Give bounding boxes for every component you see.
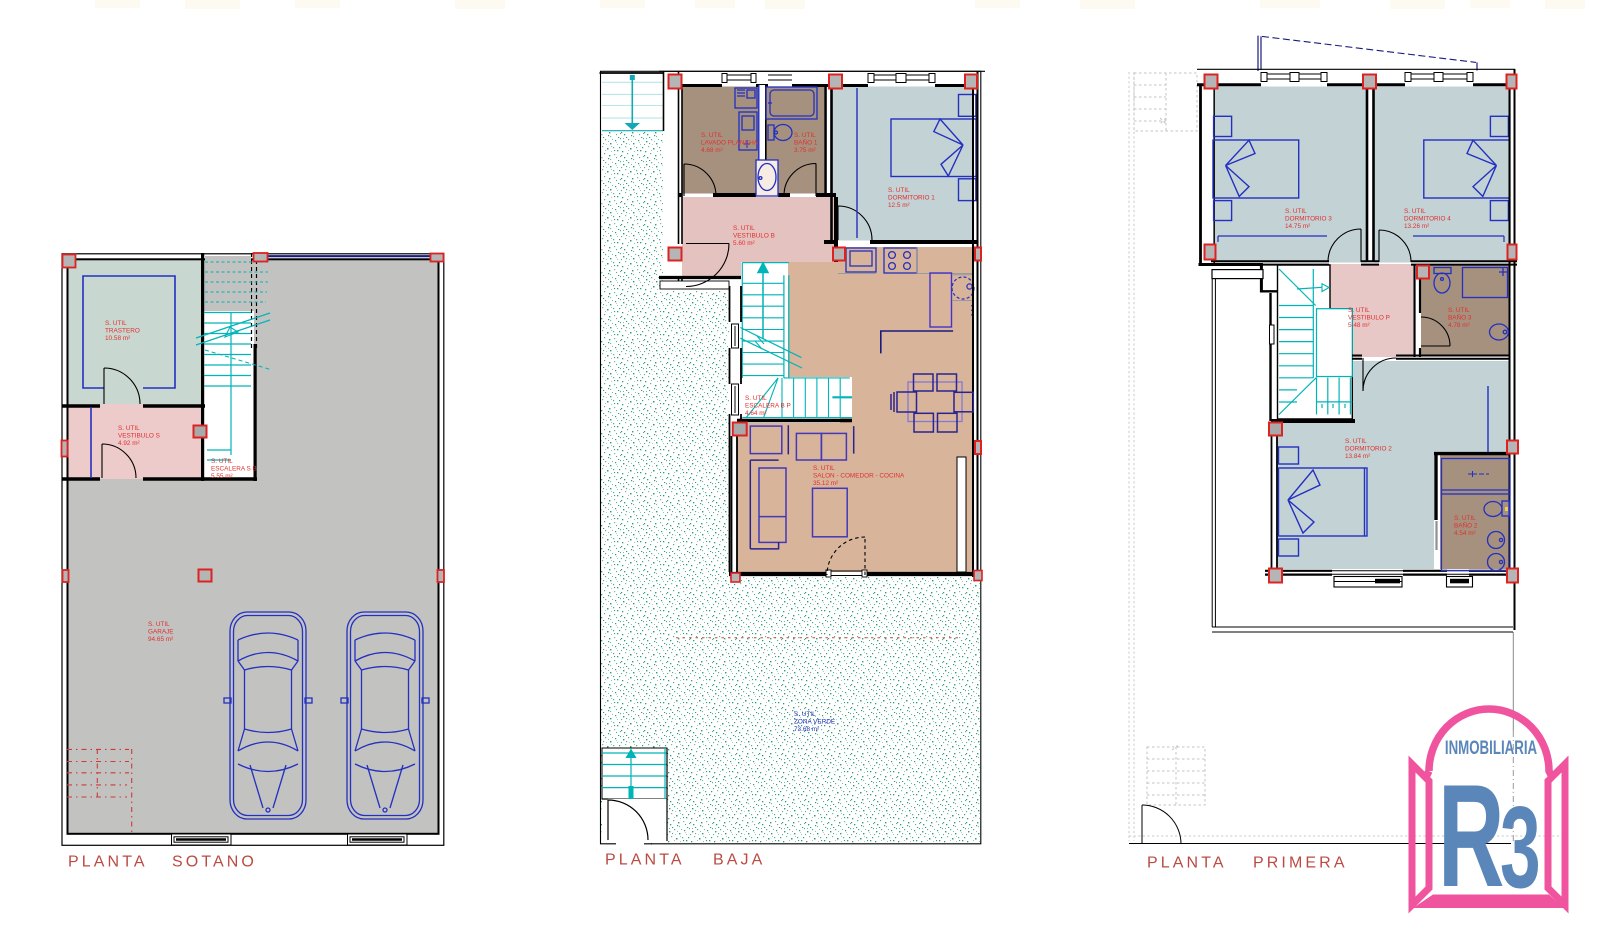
- svg-text:GARAJE: GARAJE: [148, 629, 174, 636]
- svg-text:S. UTIL: S. UTIL: [1348, 307, 1370, 314]
- svg-text:SALON - COMEDOR - COCINA: SALON - COMEDOR - COCINA: [813, 473, 905, 480]
- svg-text:14.75 m²: 14.75 m²: [1285, 223, 1310, 230]
- svg-text:TRASTERO: TRASTERO: [105, 328, 140, 335]
- svg-text:VESTIBULO B: VESTIBULO B: [733, 233, 775, 240]
- svg-text:S. UTIL: S. UTIL: [794, 711, 816, 718]
- svg-text:S. UTIL: S. UTIL: [118, 425, 140, 432]
- svg-text:S. UTIL: S. UTIL: [1345, 438, 1367, 445]
- svg-text:S. UTIL: S. UTIL: [794, 132, 816, 139]
- svg-text:DORMITORIO 3: DORMITORIO 3: [1285, 216, 1332, 223]
- svg-text:BAÑO 2: BAÑO 2: [1454, 521, 1478, 530]
- svg-text:PLANTA: PLANTA: [605, 852, 685, 869]
- svg-text:S. UTIL: S. UTIL: [1454, 515, 1476, 522]
- svg-text:5.55 m²: 5.55 m²: [211, 473, 233, 480]
- svg-text:ESCALERA B P: ESCALERA B P: [745, 403, 791, 410]
- svg-text:3.75 m²: 3.75 m²: [794, 147, 816, 154]
- svg-text:DORMITORIO 2: DORMITORIO 2: [1345, 446, 1392, 453]
- svg-text:S. UTIL: S. UTIL: [148, 621, 170, 628]
- svg-text:VESTIBULO S: VESTIBULO S: [118, 433, 160, 440]
- svg-text:13.84 m²: 13.84 m²: [1345, 453, 1370, 460]
- svg-text:DORMITORIO 1: DORMITORIO 1: [888, 195, 935, 202]
- svg-text:5.48 m²: 5.48 m²: [1348, 322, 1370, 329]
- svg-text:73.68 m²: 73.68 m²: [794, 726, 819, 733]
- svg-text:PLANTA: PLANTA: [1147, 855, 1227, 872]
- svg-text:S. UTIL: S. UTIL: [813, 465, 835, 472]
- svg-text:13.26 m²: 13.26 m²: [1404, 223, 1429, 230]
- svg-text:12.5 m²: 12.5 m²: [888, 202, 910, 209]
- svg-text:4.78 m²: 4.78 m²: [1448, 322, 1470, 329]
- svg-text:S. UTIL: S. UTIL: [745, 395, 767, 402]
- svg-text:S. UTIL: S. UTIL: [1448, 307, 1470, 314]
- svg-text:S. UTIL: S. UTIL: [888, 187, 910, 194]
- svg-text:94.65 m²: 94.65 m²: [148, 636, 173, 643]
- svg-text:5.60 m²: 5.60 m²: [733, 240, 755, 247]
- svg-text:S. UTIL: S. UTIL: [211, 458, 233, 465]
- svg-text:SOTANO: SOTANO: [172, 854, 257, 871]
- svg-text:4.68 m²: 4.68 m²: [701, 147, 723, 154]
- svg-text:BAÑO 3: BAÑO 3: [1448, 313, 1472, 322]
- svg-text:S. UTIL: S. UTIL: [701, 132, 723, 139]
- svg-text:S. UTIL: S. UTIL: [105, 320, 127, 327]
- svg-text:S. UTIL: S. UTIL: [1404, 208, 1426, 215]
- svg-text:BAÑO 1: BAÑO 1: [794, 138, 818, 147]
- svg-text:S. UTIL: S. UTIL: [1285, 208, 1307, 215]
- svg-text:ZONA VERDE: ZONA VERDE: [794, 719, 835, 726]
- svg-text:LAVADO PLANCHA: LAVADO PLANCHA: [701, 140, 759, 147]
- svg-text:35.12 m²: 35.12 m²: [813, 480, 838, 487]
- svg-text:R: R: [1438, 754, 1504, 917]
- svg-text:PRIMERA: PRIMERA: [1253, 855, 1348, 872]
- svg-text:DORMITORIO 4: DORMITORIO 4: [1404, 216, 1451, 223]
- svg-text:PLANTA: PLANTA: [68, 854, 148, 871]
- svg-text:4.54 m²: 4.54 m²: [1454, 530, 1476, 537]
- svg-text:BAJA: BAJA: [713, 852, 765, 869]
- svg-text:4.64 m²: 4.64 m²: [745, 410, 767, 417]
- svg-text:3: 3: [1500, 782, 1541, 912]
- svg-text:ESCALERA S B: ESCALERA S B: [211, 466, 257, 473]
- svg-text:VESTIBULO P: VESTIBULO P: [1348, 315, 1390, 322]
- svg-text:10.58 m²: 10.58 m²: [105, 335, 130, 342]
- svg-text:S. UTIL: S. UTIL: [733, 225, 755, 232]
- svg-text:4.92 m²: 4.92 m²: [118, 440, 140, 447]
